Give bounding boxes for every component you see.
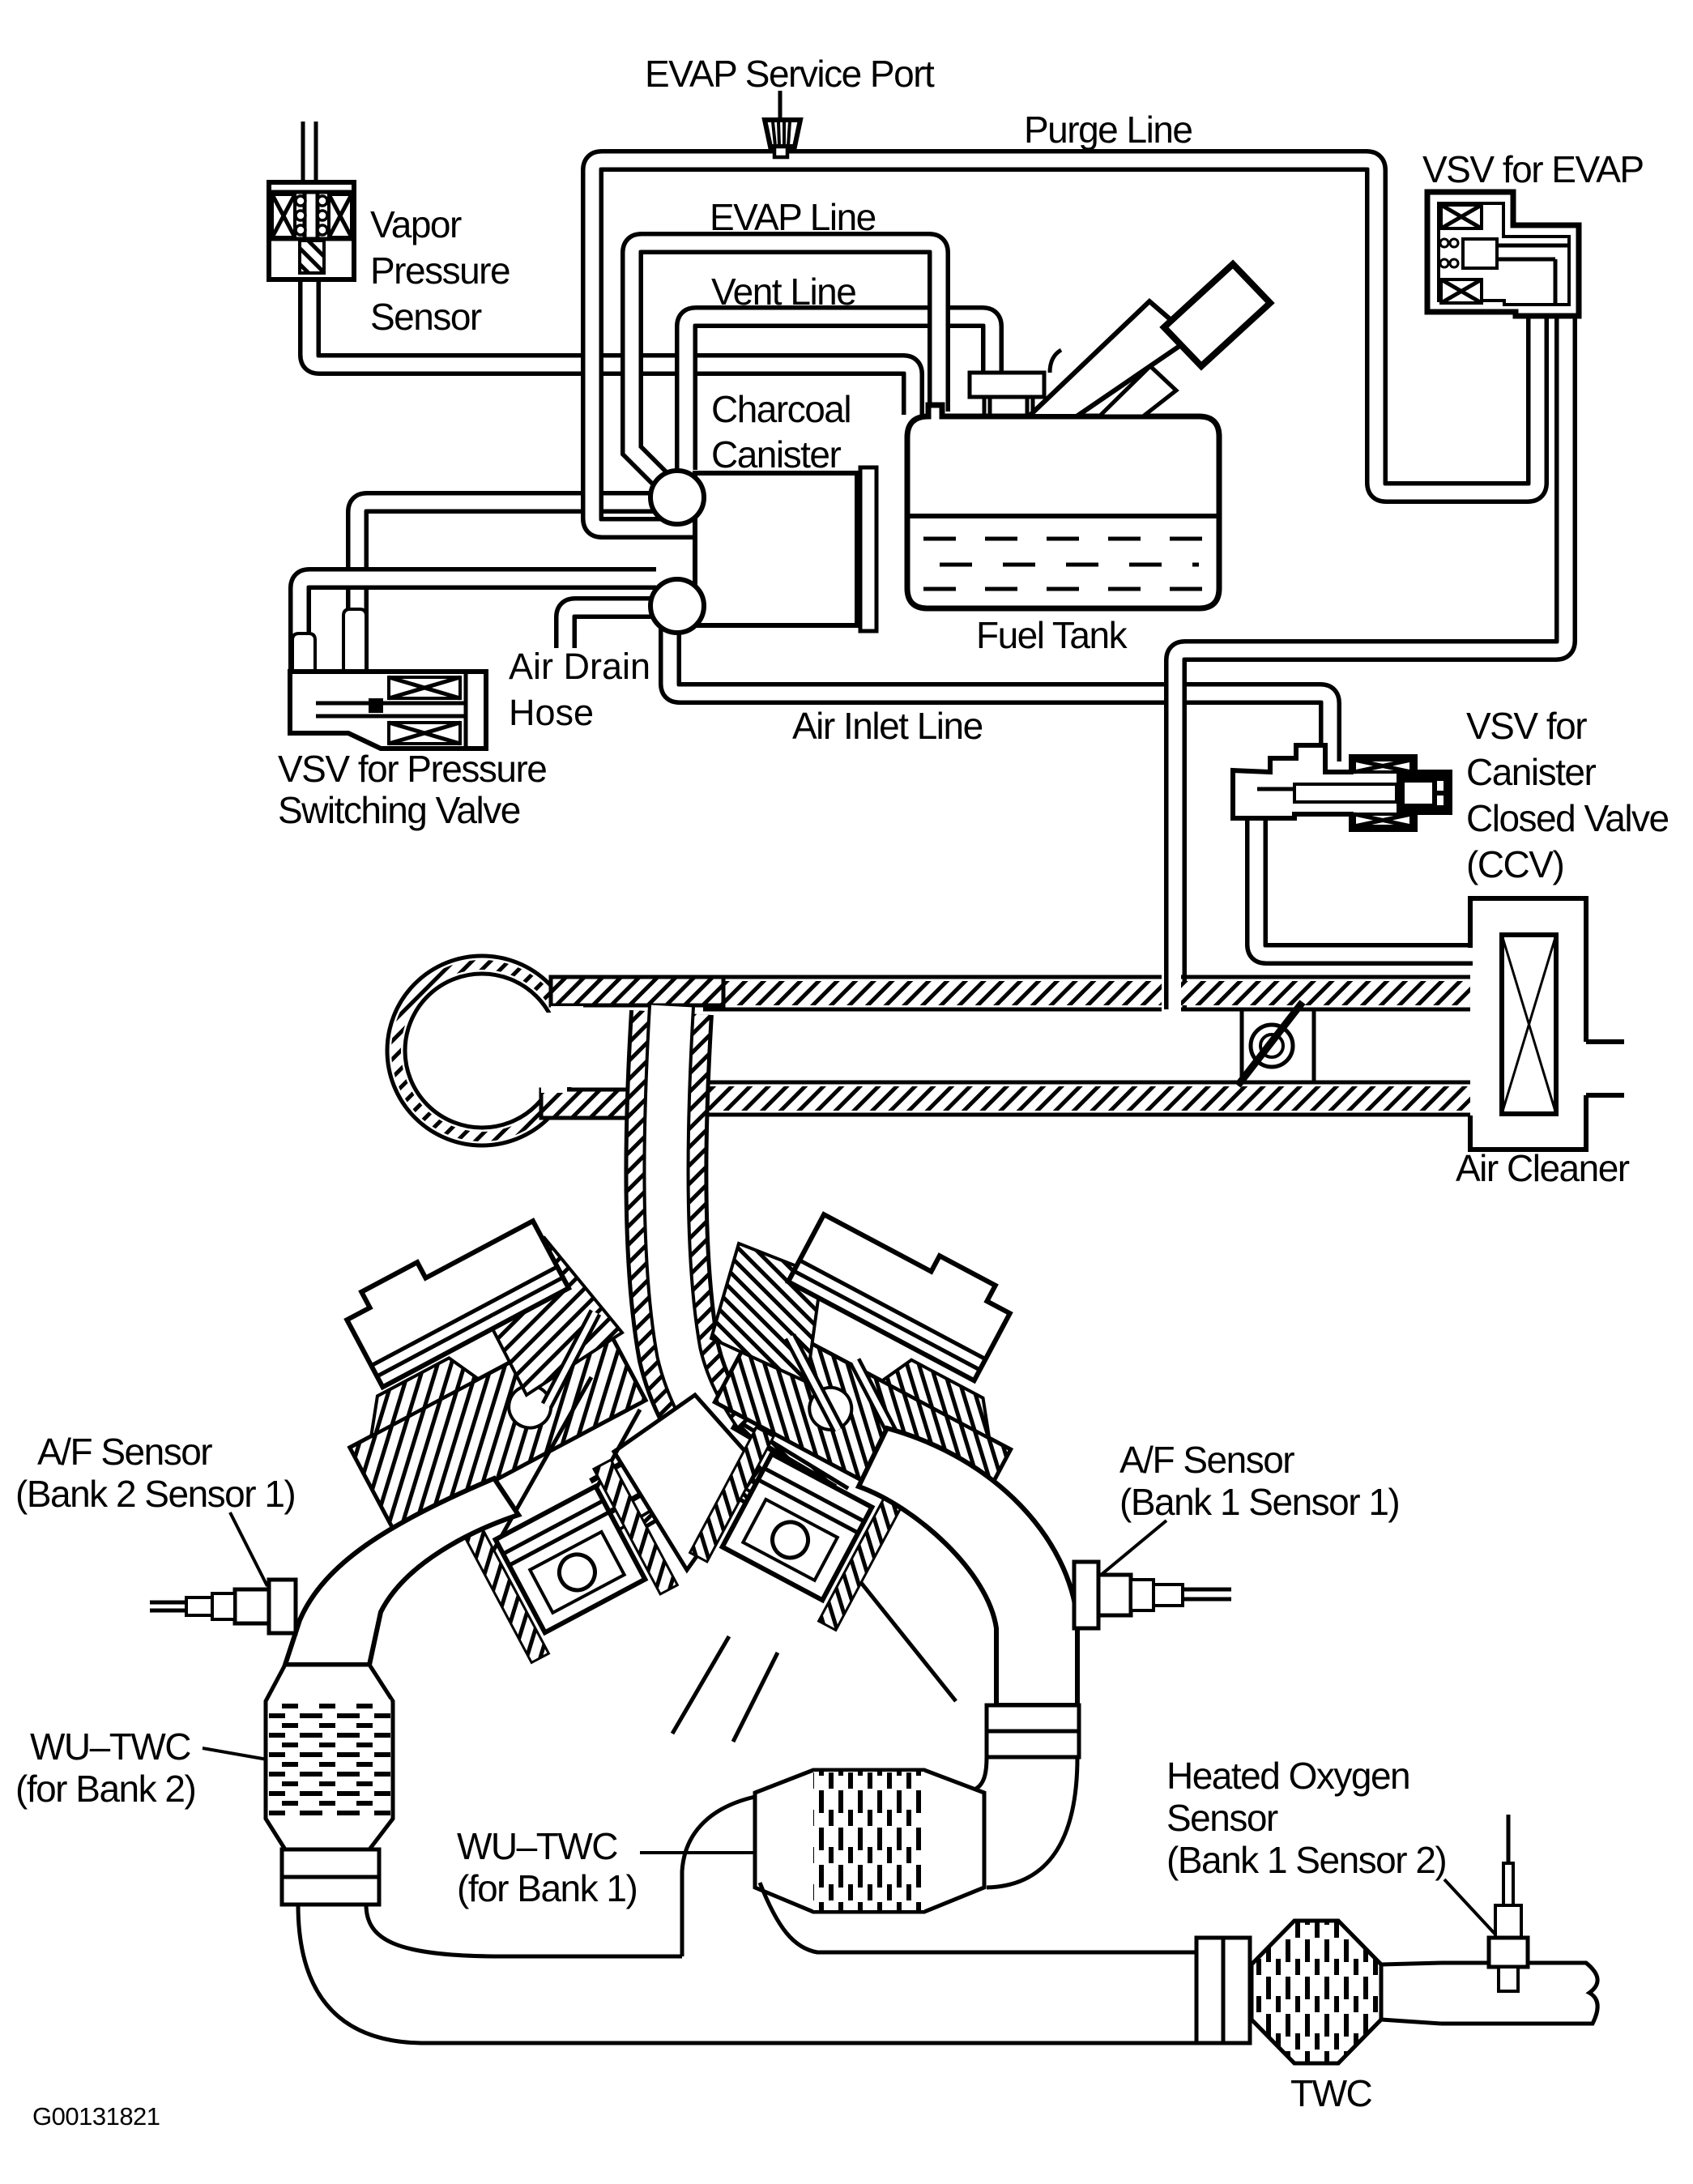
svg-text:Hose: Hose [509, 692, 594, 733]
svg-text:Sensor: Sensor [1166, 1797, 1278, 1839]
svg-text:Vapor: Vapor [370, 203, 462, 245]
svg-text:WU–TWC: WU–TWC [30, 1725, 190, 1768]
svg-text:(Bank 1 Sensor 2): (Bank 1 Sensor 2) [1166, 1839, 1446, 1881]
svg-text:VSV for: VSV for [1466, 705, 1587, 747]
svg-text:G00131821: G00131821 [32, 2102, 160, 2131]
svg-text:Fuel Tank: Fuel Tank [976, 614, 1128, 656]
svg-text:Charcoal: Charcoal [711, 388, 851, 430]
svg-text:Canister: Canister [1466, 751, 1596, 793]
svg-text:Pressure: Pressure [370, 250, 510, 292]
svg-text:Switching Valve: Switching Valve [278, 789, 520, 831]
svg-text:Purge Line: Purge Line [1024, 109, 1192, 151]
svg-text:(CCV): (CCV) [1466, 843, 1563, 885]
svg-text:A/F Sensor: A/F Sensor [1119, 1439, 1294, 1481]
svg-text:WU–TWC: WU–TWC [457, 1825, 617, 1867]
svg-text:VSV for Pressure: VSV for Pressure [278, 748, 546, 790]
svg-text:(for Bank 2): (for Bank 2) [15, 1768, 195, 1810]
svg-text:Air Inlet Line: Air Inlet Line [792, 705, 983, 747]
svg-text:EVAP Service Port: EVAP Service Port [645, 53, 935, 95]
svg-text:Closed Valve: Closed Valve [1466, 797, 1669, 839]
svg-text:Air Drain: Air Drain [509, 646, 650, 687]
svg-text:(Bank 2 Sensor 1): (Bank 2 Sensor 1) [15, 1473, 295, 1515]
svg-text:TWC: TWC [1290, 2072, 1372, 2114]
svg-text:Air Cleaner: Air Cleaner [1456, 1147, 1630, 1189]
svg-text:(for Bank 1): (for Bank 1) [457, 1867, 637, 1909]
svg-text:Sensor: Sensor [370, 296, 482, 338]
svg-text:VSV for EVAP: VSV for EVAP [1422, 148, 1644, 190]
svg-text:A/F Sensor: A/F Sensor [37, 1431, 212, 1473]
svg-text:Canister: Canister [711, 433, 841, 476]
svg-text:Heated Oxygen: Heated Oxygen [1166, 1755, 1409, 1797]
svg-text:(Bank 1 Sensor 1): (Bank 1 Sensor 1) [1119, 1481, 1399, 1523]
